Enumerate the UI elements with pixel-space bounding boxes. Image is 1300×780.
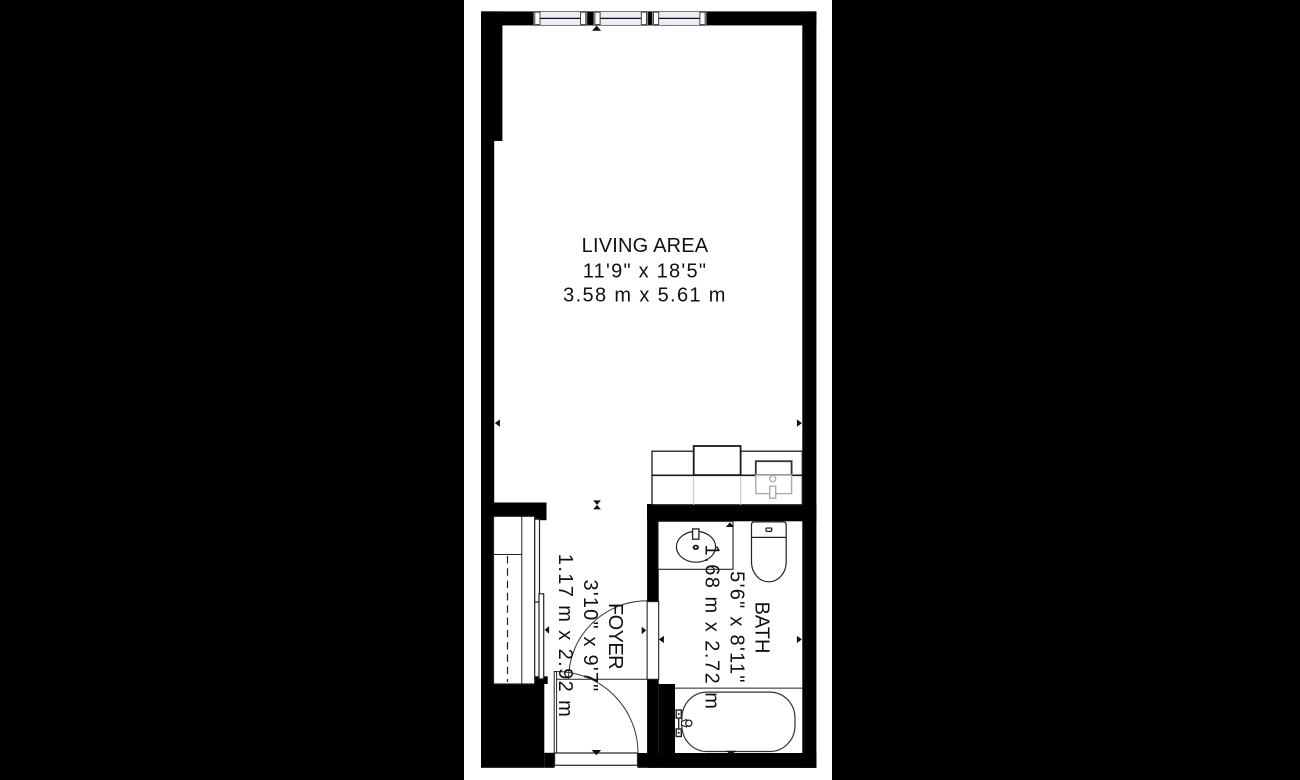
- svg-text:LIVING AREA: LIVING AREA: [582, 235, 709, 257]
- svg-text:FOYER: FOYER: [604, 603, 626, 669]
- svg-text:3.58 m x 5.61 m: 3.58 m x 5.61 m: [563, 285, 727, 307]
- svg-text:1.17 m x 2.92 m: 1.17 m x 2.92 m: [554, 554, 576, 718]
- svg-text:BATH: BATH: [751, 602, 773, 654]
- svg-text:11'9" x 18'5": 11'9" x 18'5": [583, 261, 707, 283]
- svg-text:1.68 m x 2.72 m: 1.68 m x 2.72 m: [701, 545, 723, 711]
- svg-text:5'6" x 8'11": 5'6" x 8'11": [726, 571, 748, 684]
- svg-text:3'10" x 9'7": 3'10" x 9'7": [579, 580, 601, 693]
